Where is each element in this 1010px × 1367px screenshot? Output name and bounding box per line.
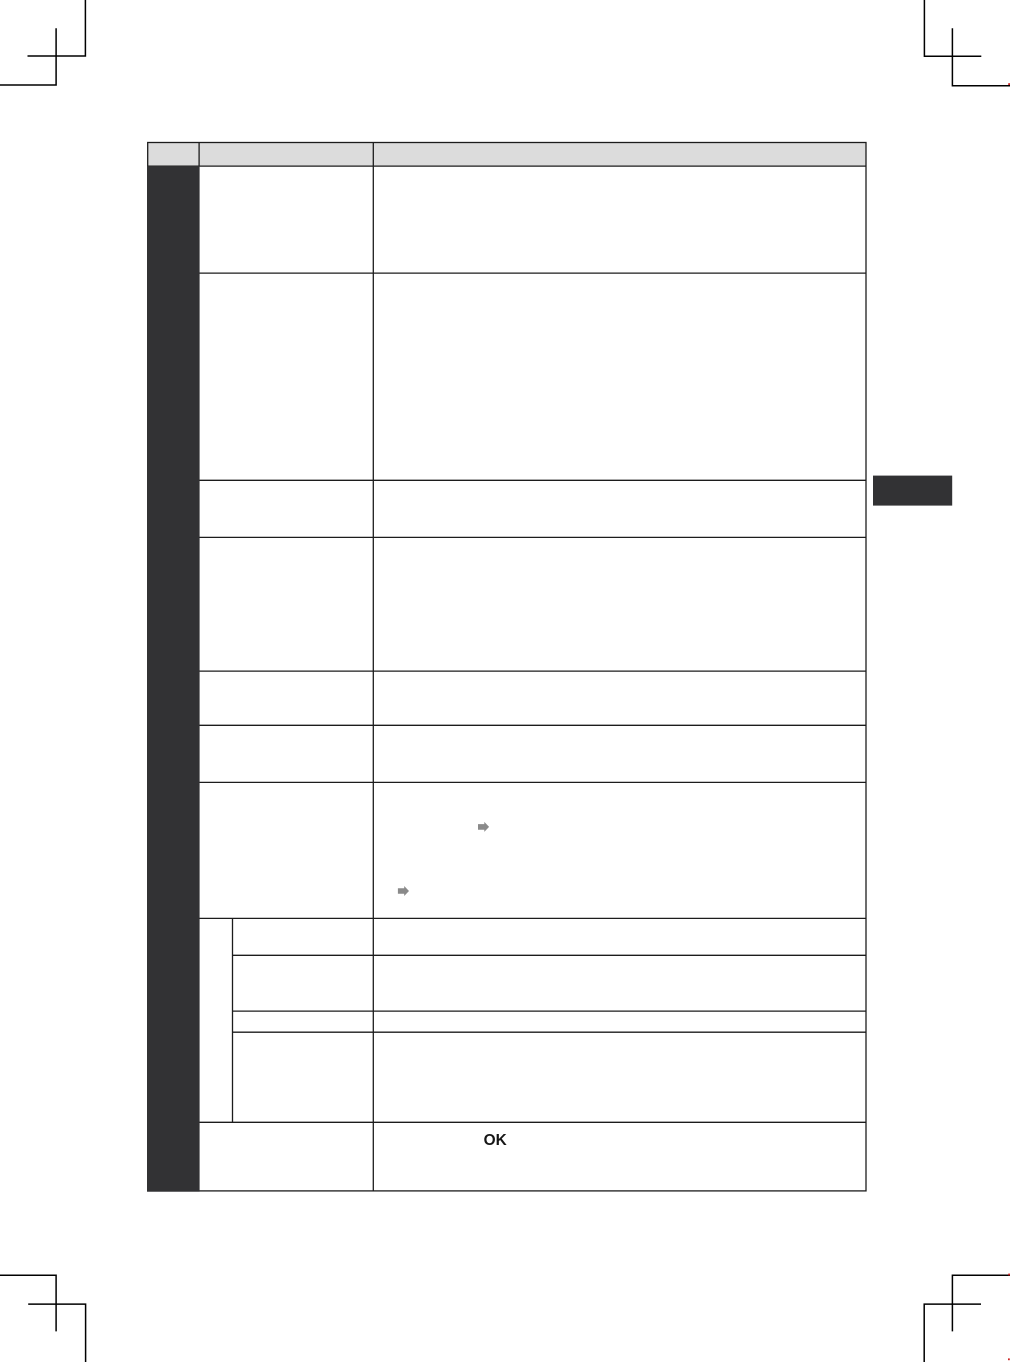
svg-text:OK: OK xyxy=(484,1132,507,1149)
